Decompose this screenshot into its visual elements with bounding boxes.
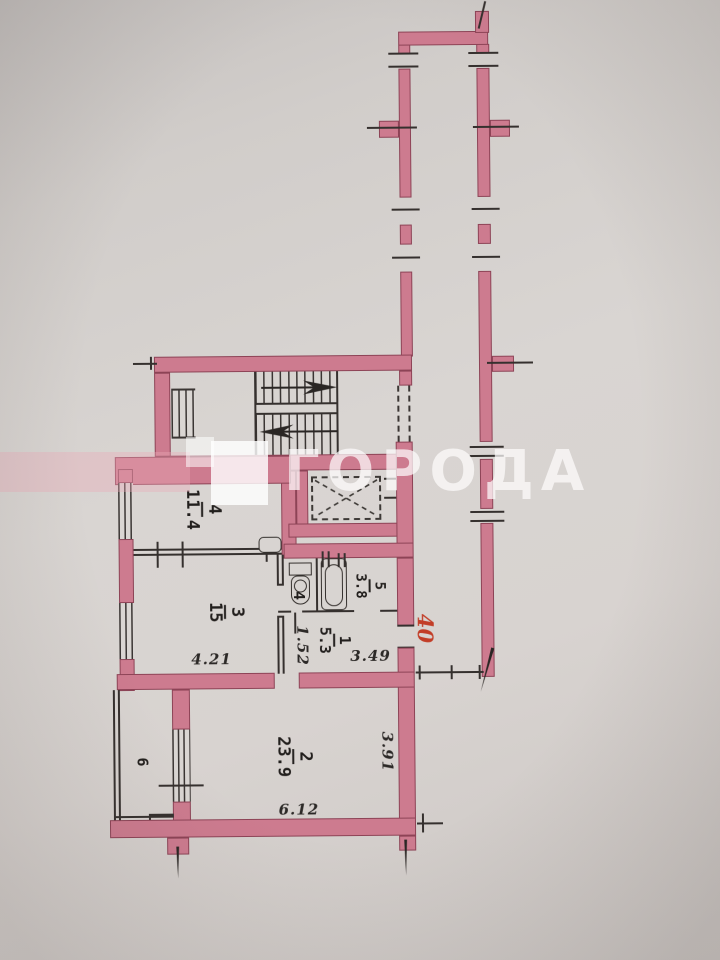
wc-bath-south-wall <box>278 611 291 613</box>
wc-label: 4 <box>290 591 308 600</box>
window-break-tick <box>472 208 500 210</box>
room3-area: 15 <box>205 602 224 623</box>
room4-door-leaf <box>258 537 281 553</box>
room3-number: 3 <box>224 605 245 619</box>
stair-up-arrow <box>257 377 339 398</box>
hall-area: 5.3 <box>317 627 334 654</box>
dim-hall-width: 3.49 <box>350 647 391 665</box>
balcony-window-block <box>172 729 191 801</box>
bottom-right-stub <box>399 836 416 851</box>
bath-label: 5 3.8 <box>353 573 387 599</box>
dim-room2-depth: 3.91 <box>378 731 396 772</box>
lift-shaft-bottom-wall <box>288 523 397 538</box>
corridor-top-wall <box>398 31 488 46</box>
watermark-logo <box>186 437 214 467</box>
stair-left-tick <box>133 363 157 365</box>
wc-bath-south-wall <box>380 610 397 612</box>
gallery-dim-tick <box>419 665 421 679</box>
hall-number: 1 <box>333 634 352 647</box>
balcony-window-tick <box>159 784 204 786</box>
window-break-tick <box>388 52 418 54</box>
stair-right-wall <box>399 371 412 386</box>
stair-doorway-dashed <box>397 386 399 442</box>
stair-doorway-dashed <box>408 386 410 442</box>
room3-right-partition <box>277 618 279 674</box>
hall-label: 1 5.3 <box>317 627 353 654</box>
room2-area: 23.9 <box>273 736 292 777</box>
bathtub-inner <box>325 564 343 606</box>
watermark-logo <box>211 441 268 505</box>
balcony-outline <box>113 690 116 820</box>
room2-number: 2 <box>292 749 313 763</box>
balcony-label: 6 <box>133 757 151 766</box>
room4-area: 11.4 <box>182 489 201 530</box>
apartment-right-wall <box>397 558 415 626</box>
room3-right-partition <box>277 555 279 586</box>
toilet-tank <box>289 562 312 575</box>
room2-north-wall <box>299 672 415 689</box>
room2-left-wall <box>173 801 191 820</box>
window-break-tick <box>392 256 420 258</box>
bath-area: 3.8 <box>353 573 369 598</box>
room3-window <box>119 603 134 659</box>
bottom-wall <box>110 818 416 839</box>
window-break-tick <box>468 52 498 54</box>
balcony-outline <box>118 690 121 820</box>
room2-left-wall <box>172 689 190 729</box>
window-break-tick <box>468 65 498 67</box>
wall-joint-tick <box>367 126 417 128</box>
corridor-left-wall <box>398 69 411 198</box>
room4-door-line <box>266 553 268 562</box>
wall-joint-tick <box>473 126 519 128</box>
balcony-outline <box>114 816 174 819</box>
wc-bath-south-wall <box>302 610 354 612</box>
room3-right-partition <box>282 555 284 586</box>
window-break-tick <box>470 511 504 513</box>
watermark-band <box>0 452 190 492</box>
dim-room3-width: 4.21 <box>191 650 232 668</box>
left-wall <box>119 539 135 603</box>
stair-window <box>171 388 195 438</box>
room2-north-wall <box>117 673 275 690</box>
gallery-dim-tick <box>479 665 481 679</box>
window-break-tick <box>388 65 418 67</box>
corridor-left-wall <box>400 225 412 245</box>
gallery-dim-tick <box>451 665 453 679</box>
wc-bath-divider <box>316 558 318 612</box>
dim-hall-depth: 1.52 <box>293 625 311 666</box>
window-break-tick <box>472 256 500 258</box>
partition-tick <box>157 542 159 568</box>
bath-number: 5 <box>369 580 387 593</box>
bottom-wall-arrow-tick <box>422 813 424 832</box>
corridor-right-stub <box>490 120 510 137</box>
apartment-top-wall <box>284 543 414 559</box>
window-break-tick <box>392 208 420 210</box>
entrance-door-line <box>397 625 414 627</box>
gallery-dim-line <box>416 671 484 674</box>
window-break-tick <box>470 520 504 522</box>
corridor-left-wall <box>400 272 413 357</box>
corridor-left-stub <box>379 121 399 138</box>
wall-joint-tick <box>487 361 533 363</box>
room3-right-partition <box>282 618 284 674</box>
room3-door-cap <box>277 584 284 586</box>
apartment-number: 40 <box>413 614 438 643</box>
bottom-wall-arrow <box>417 822 443 824</box>
room3-label: 3 15 <box>205 602 245 623</box>
stair-top-wall <box>154 355 412 373</box>
watermark-text: ГОРОДА <box>284 444 591 500</box>
floorplan-photo: 4 11.4 3 15 4 5 3.8 1 5.3 2 23.9 6 4.21 … <box>0 0 720 960</box>
corridor-right-wall <box>476 68 490 197</box>
corridor-right-wall <box>478 224 491 244</box>
partition-tick <box>182 542 184 568</box>
stair-left-tick <box>150 357 152 370</box>
room2-label: 2 23.9 <box>273 736 313 777</box>
corridor-right-wall <box>478 271 492 442</box>
dim-room2-width: 6.12 <box>279 800 320 818</box>
